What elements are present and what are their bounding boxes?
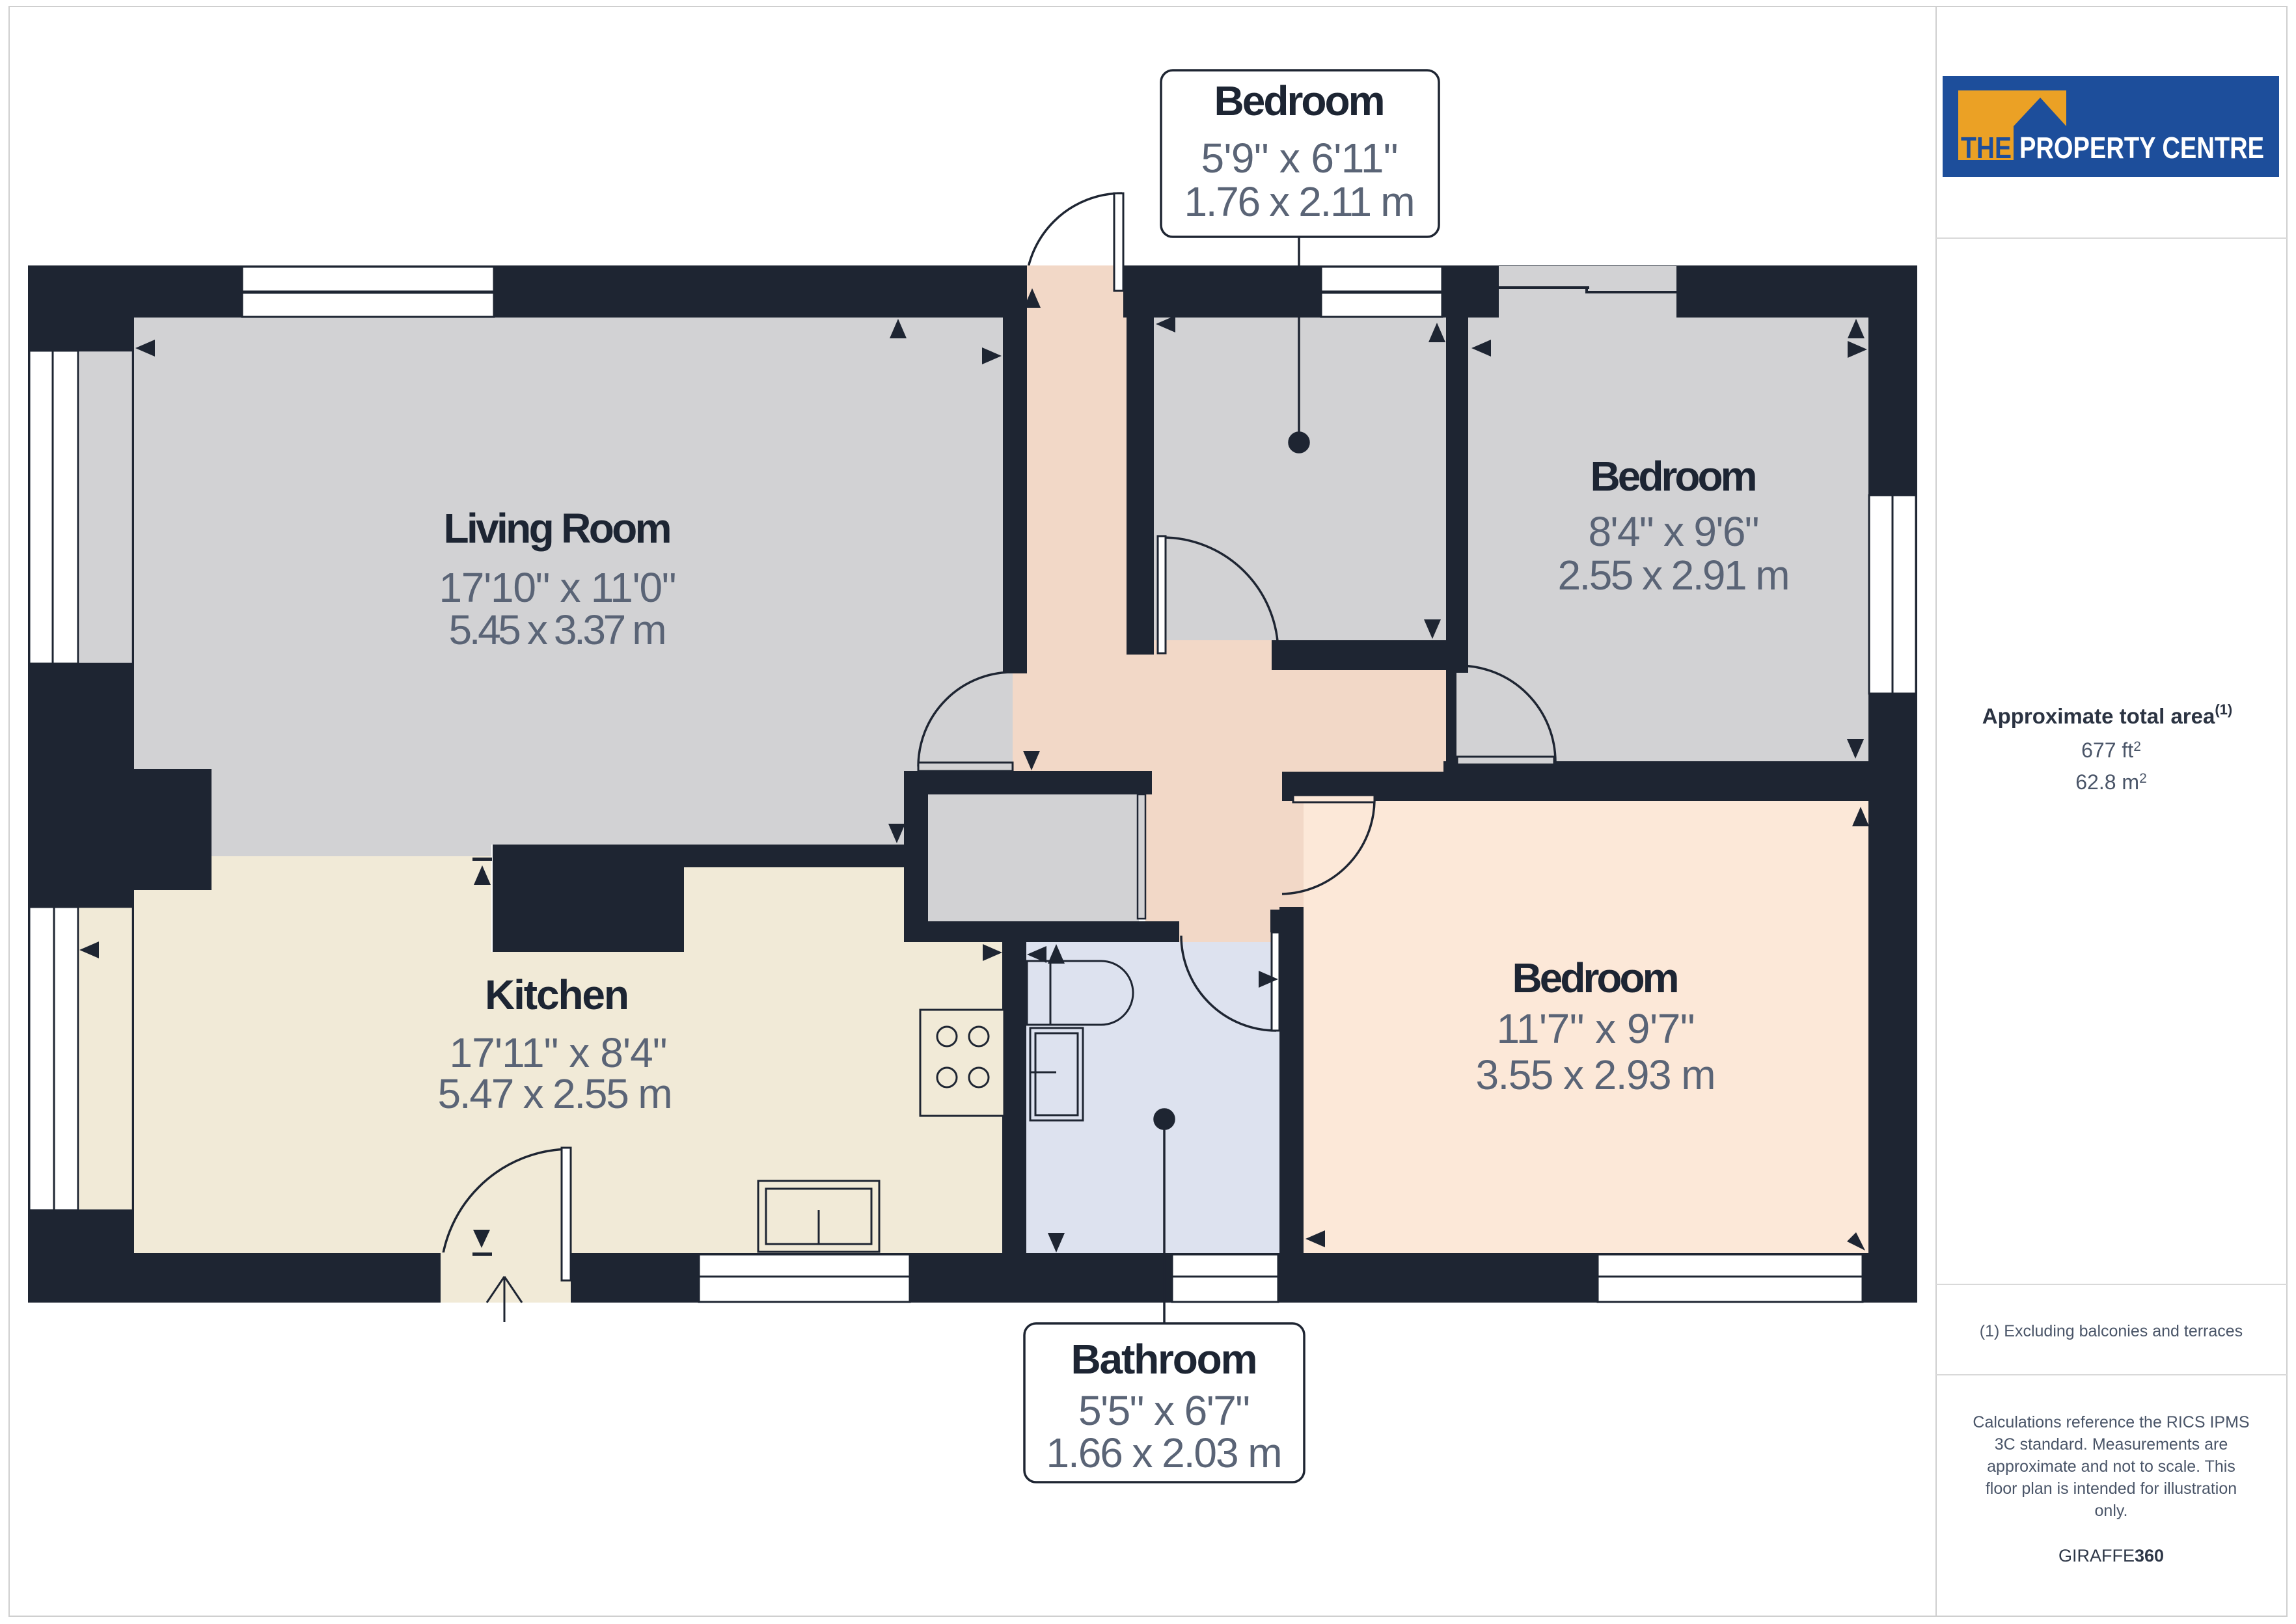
svg-text:1.76 x 2.11 m: 1.76 x 2.11 m — [1184, 178, 1415, 225]
svg-text:3.55 x 2.93 m: 3.55 x 2.93 m — [1476, 1051, 1716, 1098]
svg-text:Living Room: Living Room — [444, 505, 672, 552]
svg-text:Kitchen: Kitchen — [485, 971, 629, 1018]
svg-text:17'11" x 8'4": 17'11" x 8'4" — [450, 1029, 668, 1076]
svg-text:GIRAFFE360: GIRAFFE360 — [2058, 1546, 2164, 1565]
svg-text:677 ft2: 677 ft2 — [2081, 738, 2141, 762]
svg-text:floor plan is intended for ill: floor plan is intended for illustration — [1986, 1480, 2237, 1498]
svg-text:1.66 x 2.03 m: 1.66 x 2.03 m — [1046, 1429, 1283, 1476]
svg-text:11'7" x 9'7": 11'7" x 9'7" — [1497, 1005, 1695, 1052]
svg-text:approximate and not to scale.: approximate and not to scale. This — [1987, 1457, 2235, 1476]
svg-text:62.8 m2: 62.8 m2 — [2075, 770, 2147, 794]
svg-text:3C standard. Measurements are: 3C standard. Measurements are — [1995, 1435, 2228, 1454]
svg-text:Bedroom: Bedroom — [1591, 453, 1758, 500]
svg-text:5'9" x 6'11": 5'9" x 6'11" — [1201, 135, 1399, 182]
svg-text:17'10" x 11'0": 17'10" x 11'0" — [439, 564, 677, 611]
svg-text:5'5" x 6'7": 5'5" x 6'7" — [1078, 1387, 1250, 1434]
svg-text:PROPERTY CENTRE: PROPERTY CENTRE — [2019, 131, 2264, 165]
svg-text:Bedroom: Bedroom — [1214, 77, 1386, 124]
svg-text:2.55 x 2.91 m: 2.55 x 2.91 m — [1558, 552, 1790, 599]
svg-text:only.: only. — [2095, 1502, 2128, 1520]
svg-text:(1) Excluding balconies and te: (1) Excluding balconies and terraces — [1980, 1322, 2243, 1340]
svg-text:5.45 x 3.37 m: 5.45 x 3.37 m — [449, 606, 667, 653]
svg-text:Bathroom: Bathroom — [1071, 1336, 1258, 1383]
svg-text:THE: THE — [1961, 131, 2012, 165]
svg-text:Bedroom: Bedroom — [1512, 954, 1680, 1001]
svg-text:5.47 x 2.55 m: 5.47 x 2.55 m — [438, 1070, 673, 1117]
svg-text:8'4" x 9'6": 8'4" x 9'6" — [1589, 508, 1760, 555]
svg-text:Approximate total area(1): Approximate total area(1) — [1982, 701, 2233, 728]
svg-text:Calculations reference the RIC: Calculations reference the RICS IPMS — [1973, 1413, 2249, 1431]
